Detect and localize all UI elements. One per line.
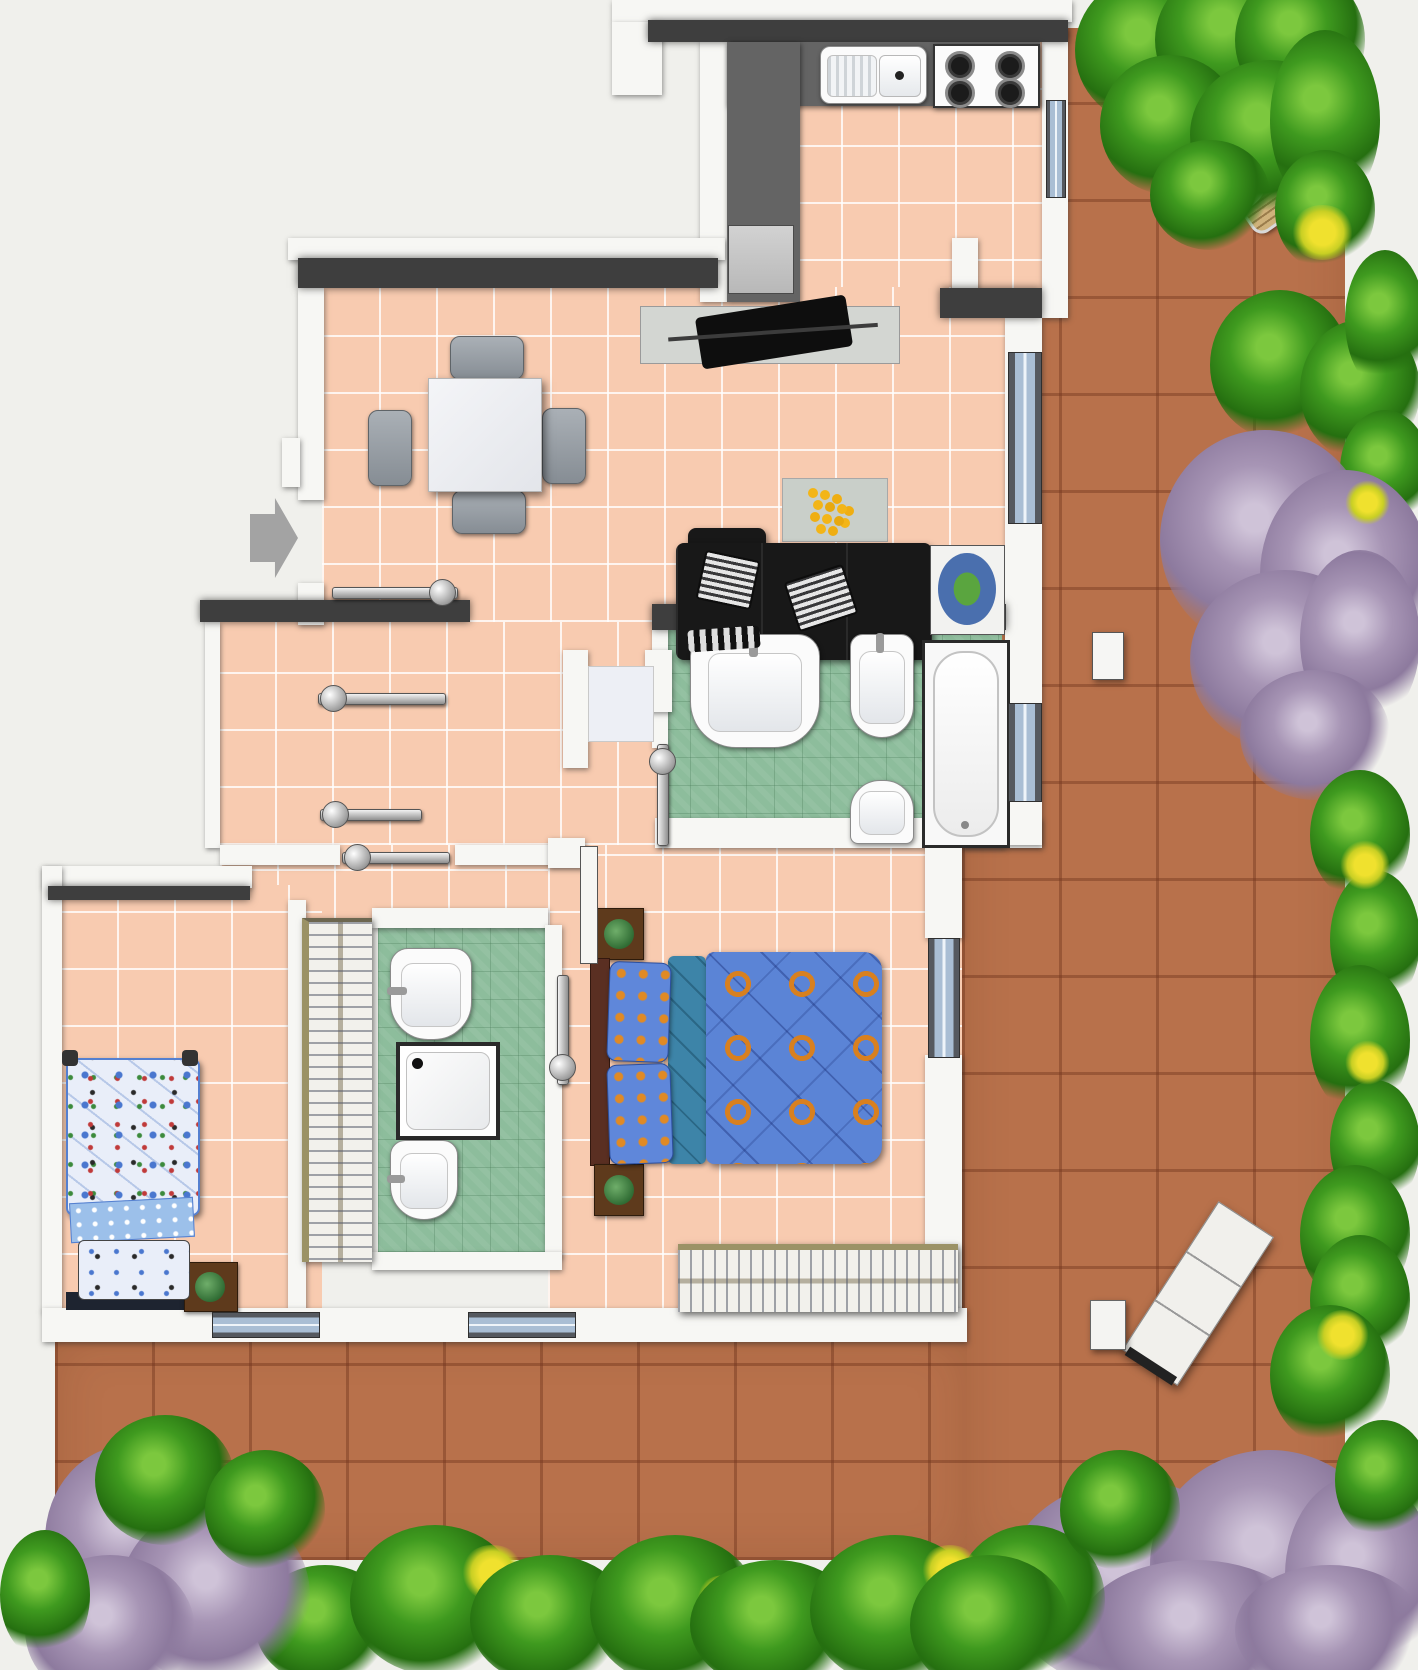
dining-chair (450, 336, 524, 380)
door-handle (429, 579, 456, 606)
bush-icon (0, 1530, 90, 1660)
wall-bath2-bottom (372, 1252, 562, 1270)
kids-bed-duvet (66, 1058, 200, 1216)
hall-sliding-door (318, 682, 446, 716)
wall-left-stub (282, 438, 300, 487)
dining-chair (452, 490, 526, 534)
bush-icon (1150, 140, 1270, 250)
bathroom-window (1008, 703, 1042, 802)
double-bed-duvet (706, 952, 882, 1164)
wall-kids-left (42, 866, 62, 1312)
bathroom2-sliding-door (548, 975, 576, 1085)
wall-hall-stub-a (563, 650, 588, 768)
bathroom-bidet (850, 634, 914, 738)
bed-pillow (606, 1063, 673, 1165)
bush-icon (205, 1450, 325, 1570)
washbasin-faucet (387, 987, 407, 995)
wall-top-band (612, 0, 1072, 22)
shower-drain (412, 1058, 423, 1069)
bed-sheet-fold (668, 956, 706, 1164)
flower-patch-icon (1345, 480, 1390, 525)
kids-bed-pillow (78, 1240, 190, 1300)
kids-room-window (212, 1312, 320, 1338)
bed-headboard (590, 958, 610, 1166)
bathtub (922, 640, 1010, 848)
sink-drain (895, 71, 904, 80)
flower-patch-icon (1345, 1040, 1390, 1085)
floor-plan-canvas (0, 0, 1418, 1670)
bedroom-door-leaf (580, 846, 598, 964)
bidet-faucet (876, 633, 884, 653)
wall-bath2-top (372, 908, 548, 928)
hall-sliding-door (332, 576, 458, 610)
door-handle (320, 685, 347, 712)
nightstand (594, 1164, 644, 1216)
stove-burner (995, 51, 1025, 81)
dining-chair (542, 408, 586, 484)
wall-living-top-band (288, 238, 725, 260)
oval-rug (938, 553, 996, 625)
sunflower-cluster (808, 488, 818, 498)
bush-icon (1060, 1450, 1180, 1570)
kitchen-stove (933, 44, 1040, 108)
wardrobe-hanger-rack (302, 918, 372, 1262)
shower-tray (396, 1042, 500, 1140)
sunflower-rug (782, 478, 888, 542)
stove-burner (945, 51, 975, 81)
kids-bed-blanket-fold (69, 1197, 195, 1243)
sink-drainboard (827, 55, 877, 97)
dining-table (428, 378, 542, 492)
kids-nightstand (184, 1262, 238, 1312)
bidet-bowl (859, 651, 905, 723)
wall-kitchen-living-stub (940, 288, 1042, 318)
bathroom-toilet (850, 780, 914, 844)
kitchen-appliance (728, 225, 794, 294)
washbasin-bowl (401, 963, 460, 1027)
bathtub-inner (933, 651, 999, 837)
bedroom-wardrobe-rack (678, 1244, 958, 1312)
toilet-bowl (859, 791, 905, 835)
bathtub-drain (961, 821, 969, 829)
wall-kids-top (48, 886, 250, 900)
stove-burner (945, 78, 975, 108)
planter-box (1092, 632, 1124, 680)
bedroom-terrace-glass-door (928, 938, 960, 1058)
bed-pillow (606, 961, 671, 1063)
corridor-sliding-door (342, 843, 450, 873)
tv-antenna (668, 323, 878, 342)
plant-icon (195, 1272, 225, 1302)
flower-patch-icon (1290, 205, 1355, 260)
plant-icon (604, 919, 634, 949)
hall-floor-mat (588, 666, 654, 742)
bathroom-washbasin (690, 634, 820, 748)
bush-icon (1345, 250, 1418, 390)
kids-bed-post (62, 1050, 78, 1066)
washbasin-bowl (708, 653, 803, 733)
stove-burner (995, 78, 1025, 108)
outdoor-side-table (1090, 1300, 1126, 1350)
living-sliding-glass-door (1008, 352, 1042, 524)
bathroom2-bidet (390, 1140, 458, 1220)
nightstand (594, 908, 644, 960)
bidet-faucet (387, 1175, 405, 1183)
corridor-window (468, 1312, 576, 1338)
wall-kids-top-band (42, 866, 252, 888)
door-handle (549, 1054, 576, 1081)
wall-living-left-upper (298, 288, 324, 500)
wall-vestibule-left (205, 622, 220, 848)
kids-bed-post (182, 1050, 198, 1066)
kitchen-sink (820, 46, 927, 104)
door-handle (322, 801, 349, 828)
flower-patch-icon (1315, 1310, 1370, 1360)
kitchen-window (1046, 100, 1066, 198)
wall-hall-bottom-a (220, 845, 340, 865)
wall-kitchen-top (648, 20, 1068, 42)
door-handle (344, 844, 371, 871)
wall-bedroom-right-a (925, 848, 962, 938)
bathroom2-washbasin (390, 948, 472, 1040)
hall-sliding-door (320, 798, 422, 832)
bidet-bowl (400, 1153, 449, 1208)
dining-chair (368, 410, 412, 486)
bathroom-sliding-door (648, 744, 676, 846)
plant-icon (604, 1175, 634, 1205)
door-handle (649, 748, 676, 775)
flower-patch-icon (1340, 840, 1390, 890)
wall-living-top (298, 258, 718, 288)
entry-arrow-icon (250, 498, 298, 578)
